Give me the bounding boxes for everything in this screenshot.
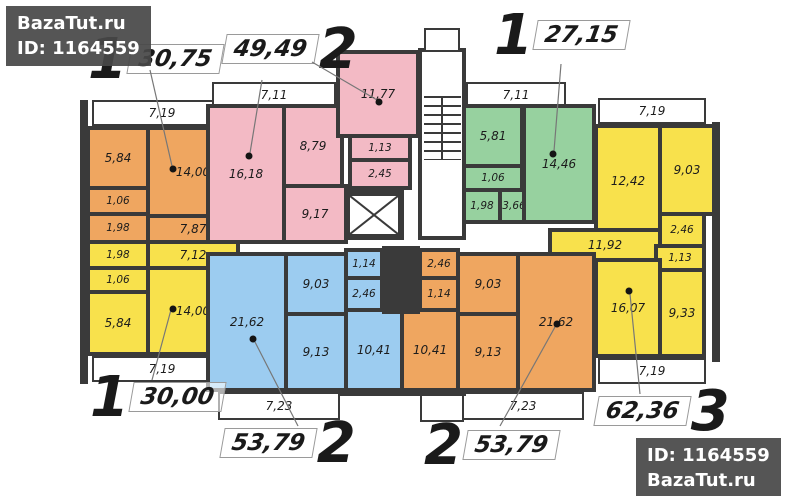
room-area: 8,79 [300,139,327,153]
living-room: 16,07 [594,258,662,358]
hallway: 9,03 [284,252,348,316]
watermark-site: BazaTut.ru [17,11,140,36]
room-area: 9,33 [669,306,696,320]
balcony: 7,23 [462,392,584,420]
room-count: 1 [494,12,533,60]
room-count: 2 [317,420,356,468]
vent-shaft-wall [382,246,420,314]
room-area: 7,23 [510,399,537,413]
bedroom: 9,03 [658,124,716,216]
bottom-center-wall [340,388,466,396]
living-room: 14,46 [522,104,596,224]
room-area: 16,07 [611,301,645,315]
room-area: 1,06 [106,195,129,207]
room-area: 9,03 [674,163,701,177]
room-area: 1,13 [368,142,391,154]
total-area: 62,36 [593,396,691,426]
watermark-site: BazaTut.ru [647,468,770,493]
right-outer-wall [712,122,720,362]
room-area: 2,46 [670,224,693,236]
watermark-bottom-right: ID: 1164559 BazaTut.ru [636,438,781,496]
room-count: 3 [691,388,730,436]
bedroom: 12,42 [594,124,662,238]
apartment-label: 53,79 2 [222,420,356,468]
room-area: 7,19 [639,364,666,378]
room-area: 1,14 [427,288,450,300]
room-area: 14,46 [542,157,576,171]
room-area: 21,62 [230,315,264,329]
apartment-label: 49,49 2 [224,26,358,74]
elevator-cross-icon [350,196,398,234]
living-room: 21,62 [206,252,288,392]
kitchen: 9,13 [284,312,348,392]
room-area: 1,98 [106,249,129,261]
watermark-id: ID: 1164559 [17,36,140,61]
room-area: 9,13 [303,345,330,359]
bathroom: 2,45 [348,158,412,190]
room-area: 7,11 [261,88,288,102]
total-area: 49,49 [221,34,319,64]
room-area: 9,03 [303,277,330,291]
room-area: 2,46 [352,288,375,300]
left-outer-wall [80,100,88,384]
hallway: 9,03 [456,252,520,316]
living-room: 16,18 [206,104,286,244]
bathroom: 1,98 [462,188,502,224]
balcony: 7,19 [598,98,706,124]
bathroom: 2,46 [344,276,384,312]
room-area: 5,84 [105,316,132,330]
room-area: 1,06 [106,274,129,286]
room-area: 2,45 [368,168,391,180]
room-area: 1,98 [470,200,493,212]
room-area: 21,62 [539,315,573,329]
room-area: 2,46 [427,258,450,270]
room-area: 11,92 [588,238,622,252]
room-area: 5,84 [105,151,132,165]
room-area: 10,41 [357,343,391,357]
room-area: 9,13 [475,345,502,359]
kitchen: 5,84 [86,290,150,356]
bedroom: 10,41 [344,308,404,392]
room-area: 9,17 [302,207,329,221]
total-area: 53,79 [219,428,317,458]
storage: 2,46 [658,212,706,248]
room-count: 2 [319,26,358,74]
room-area: 7,12 [180,248,207,262]
kitchen: 5,81 [462,104,524,168]
room-area: 1,14 [352,258,375,270]
apartment-label: 1 27,15 [494,12,628,60]
room-area: 1,98 [106,222,129,234]
room-area: 12,42 [611,174,645,188]
room-count: 2 [424,422,463,470]
room-area: 1,06 [481,172,504,184]
hallway: 9,17 [282,184,348,244]
room-area: 10,41 [413,343,447,357]
balcony: 7,19 [598,358,706,384]
room-area: 7,19 [639,104,666,118]
total-area: 53,79 [462,430,560,460]
total-area: 30,00 [128,382,226,412]
entrance-top [424,28,460,52]
room-area: 16,18 [229,167,263,181]
wc: 1,14 [418,276,460,312]
watermark-id: ID: 1164559 [647,443,770,468]
kitchen: 8,79 [282,104,344,188]
living-room: 21,62 [516,252,596,392]
apartment-label: 1 30,00 [90,374,224,422]
room-area: 11,77 [361,87,395,101]
room-count: 1 [90,374,129,422]
room-area: 7,11 [503,88,530,102]
kitchen: 9,33 [658,268,706,358]
room-area: 5,81 [480,129,507,143]
kitchen: 5,84 [86,126,150,190]
bedroom: 10,41 [400,308,460,392]
elevator-shaft [344,190,404,240]
room-area: 7,23 [266,399,293,413]
room-area: 9,03 [475,277,502,291]
apartment-label: 62,36 3 [596,388,730,436]
floor-plan: 7,19 5,84 1,06 1,98 14,00 7,87 1,98 7,12… [0,0,800,496]
watermark-top-left: BazaTut.ru ID: 1164559 [6,6,151,66]
apartment-label: 2 53,79 [424,422,558,470]
stair-divider [441,96,443,160]
room-area: 1,13 [668,252,691,264]
total-area: 27,15 [532,20,630,50]
room-area: 7,87 [180,222,207,236]
kitchen: 9,13 [456,312,520,392]
room-area: 7,19 [149,106,176,120]
